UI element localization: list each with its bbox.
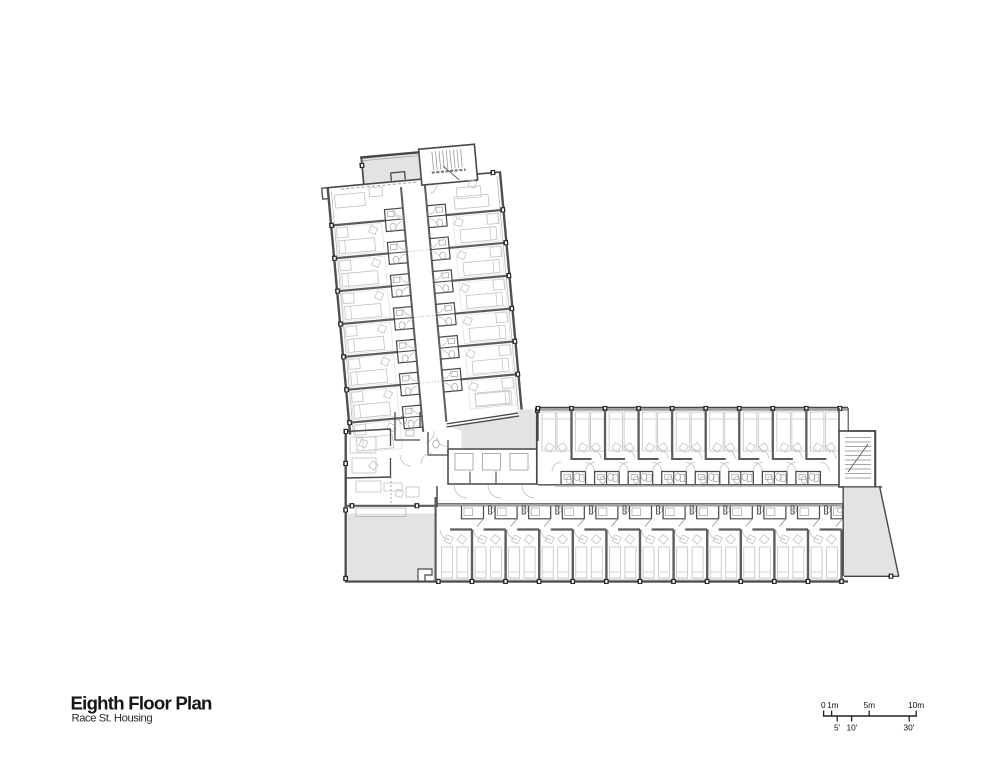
svg-text:5m: 5m — [864, 700, 876, 710]
svg-text:Eighth Floor Plan: Eighth Floor Plan — [71, 693, 213, 714]
svg-text:10m: 10m — [908, 700, 924, 710]
svg-text:Race St. Housing: Race St. Housing — [72, 713, 153, 725]
svg-text:1m: 1m — [827, 700, 839, 710]
svg-text:30': 30' — [904, 723, 915, 733]
svg-text:0: 0 — [821, 700, 826, 710]
svg-text:10': 10' — [847, 723, 858, 733]
svg-text:5': 5' — [834, 723, 841, 733]
